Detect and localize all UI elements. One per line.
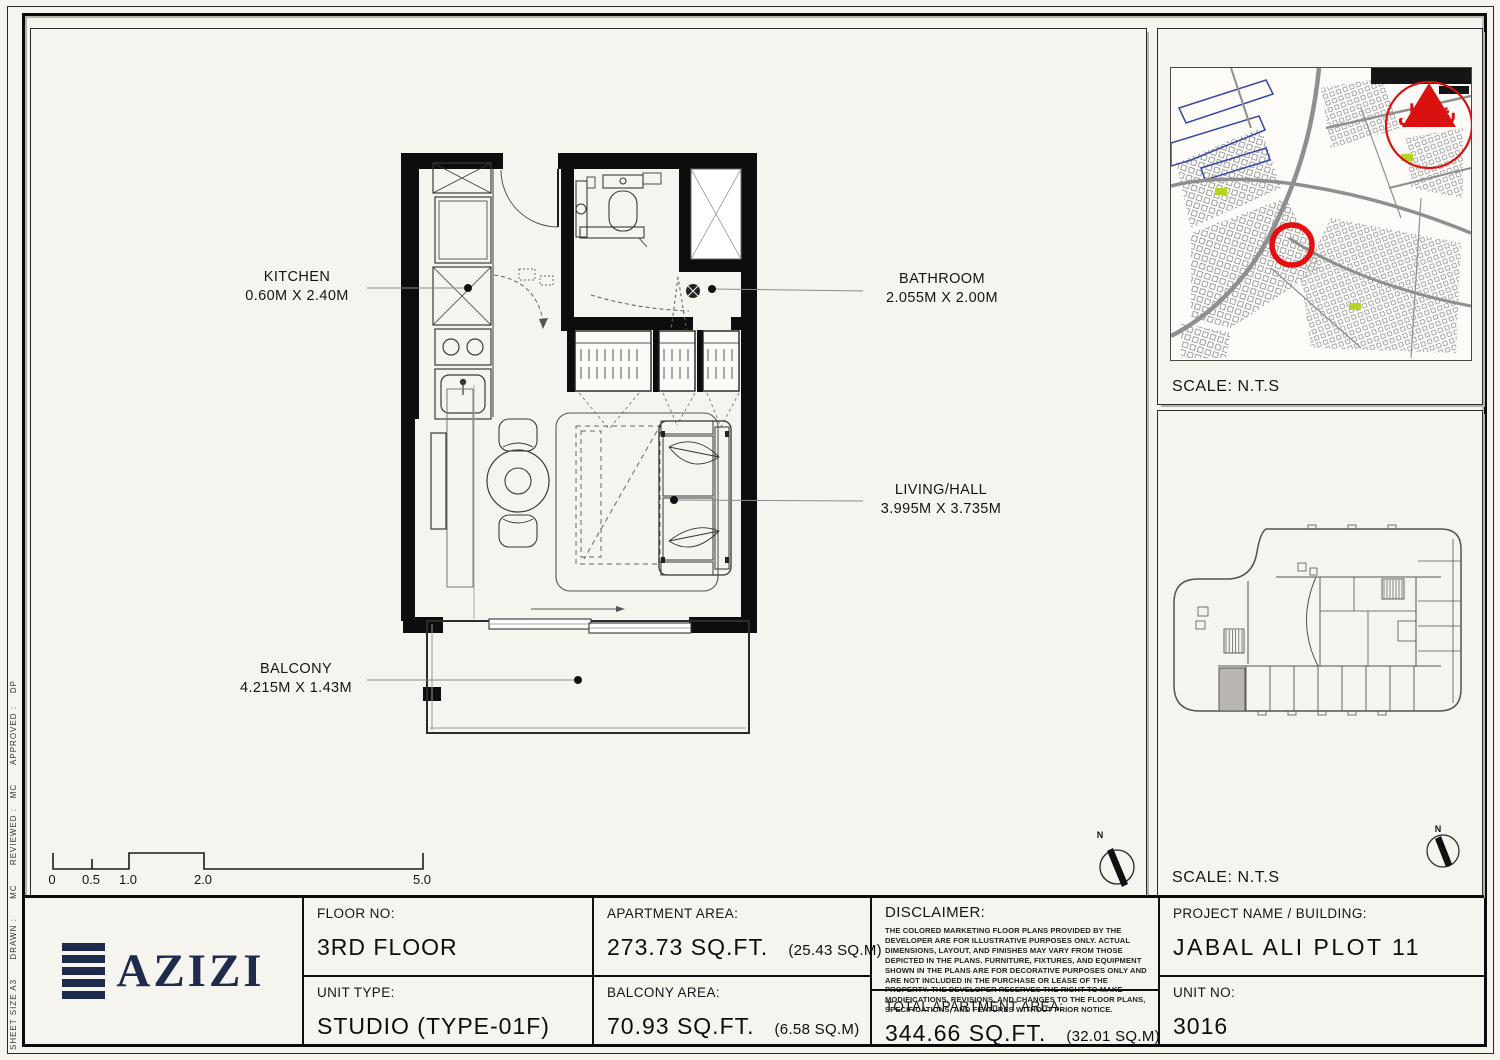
room-label-balcony: BALCONY 4.215M X 1.43M (226, 660, 366, 698)
room-name: BATHROOM (872, 270, 1012, 289)
north-compass-icon (1100, 848, 1134, 887)
total-area-label: TOTAL APARTMENT AREA: (885, 999, 1148, 1014)
key-plan-panel: SCALE: N.T.S N (1157, 410, 1483, 896)
apartment-area-value: 273.73 SQ.FT.(25.43 SQ.M) (607, 934, 860, 961)
room-label-bathroom: BATHROOM 2.055M X 2.00M (872, 270, 1012, 308)
scale-tick-3: 2.0 (194, 872, 212, 887)
room-dims: 2.055M X 2.00M (872, 289, 1012, 308)
room-dims: 0.60M X 2.40M (227, 287, 367, 306)
unit-highlight (1219, 668, 1245, 711)
unit-no-value: 3016 (1173, 1013, 1474, 1040)
floor-unit-column: FLOOR NO: 3RD FLOOR UNIT TYPE: STUDIO (T… (302, 898, 592, 1044)
service-shaft (691, 169, 741, 259)
apartment-area-label: APARTMENT AREA: (607, 906, 860, 921)
floor-no-cell: FLOOR NO: 3RD FLOOR (304, 898, 592, 975)
sofa (659, 421, 731, 575)
floor-plan-drawing (31, 29, 1146, 895)
balcony-area-label: BALCONY AREA: (607, 985, 860, 1000)
unit-no-cell: UNIT NO: 3016 (1160, 975, 1484, 1046)
apartment-area-metric: (25.43 SQ.M) (788, 942, 882, 959)
living-furniture (431, 385, 731, 619)
title-block: AZIZI FLOOR NO: 3RD FLOOR UNIT TYPE: STU… (25, 895, 1484, 1044)
room-name: LIVING/HALL (871, 481, 1011, 500)
unit-type-value: STUDIO (TYPE-01F) (317, 1013, 582, 1040)
disclaimer-column: DISCLAIMER: THE COLORED MARKETING FLOOR … (870, 898, 1158, 1044)
disclaimer-cell: DISCLAIMER: THE COLORED MARKETING FLOOR … (872, 898, 1158, 989)
unit-type-label: UNIT TYPE: (317, 985, 582, 1000)
total-area-value: 344.66 SQ.FT.(32.01 SQ.M) (885, 1020, 1148, 1047)
disclaimer-label: DISCLAIMER: (885, 904, 1148, 921)
unit-no-label: UNIT NO: (1173, 985, 1474, 1000)
room-dims: 3.995M X 3.735M (871, 500, 1011, 519)
project-name-value: JABAL ALI PLOT 11 (1173, 934, 1474, 961)
scale-tick-4: 5.0 (413, 872, 431, 887)
floor-no-value: 3RD FLOOR (317, 934, 582, 961)
room-name: BALCONY (226, 660, 366, 679)
project-name-label: PROJECT NAME / BUILDING: (1173, 906, 1474, 921)
scale-tick-2: 1.0 (119, 872, 137, 887)
project-column: PROJECT NAME / BUILDING: JABAL ALI PLOT … (1158, 898, 1484, 1044)
floor-no-label: FLOOR NO: (317, 906, 582, 921)
entrance-door-swing (494, 169, 558, 329)
kitchen-appliances (433, 163, 493, 419)
balcony-area-value: 70.93 SQ.FT.(6.58 SQ.M) (607, 1013, 860, 1040)
logo-bars-icon (62, 943, 105, 999)
total-area-metric: (32.01 SQ.M) (1066, 1028, 1160, 1045)
unit-type-cell: UNIT TYPE: STUDIO (TYPE-01F) (304, 975, 592, 1046)
azizi-logo: AZIZI (25, 898, 302, 1044)
room-label-living-hall: LIVING/HALL 3.995M X 3.735M (871, 481, 1011, 519)
key-plan-scale-label: SCALE: N.T.S (1172, 869, 1280, 887)
location-map-panel: SCALE: N.T.S (1157, 28, 1483, 405)
apartment-area-cell: APARTMENT AREA: 273.73 SQ.FT.(25.43 SQ.M… (594, 898, 870, 975)
room-dims: 4.215M X 1.43M (226, 679, 366, 698)
map-scale-label: SCALE: N.T.S (1172, 378, 1280, 396)
room-name: KITCHEN (227, 268, 367, 287)
key-plan-compass-icon (1427, 835, 1459, 867)
scale-tick-0: 0 (48, 872, 55, 887)
key-plan-north-label: N (1435, 824, 1442, 834)
balcony-area-cell: BALCONY AREA: 70.93 SQ.FT.(6.58 SQ.M) (594, 975, 870, 1046)
sheet-margin-notes: SHEET SIZE A3 DRAWN : MC REVIEWED : MC A… (9, 772, 21, 1050)
total-area-cell: TOTAL APARTMENT AREA: 344.66 SQ.FT.(32.0… (872, 989, 1158, 1046)
balcony-area-metric: (6.58 SQ.M) (775, 1021, 860, 1038)
scale-tick-1: 0.5 (82, 872, 100, 887)
sofa-bed-outline (576, 426, 660, 564)
project-name-cell: PROJECT NAME / BUILDING: JABAL ALI PLOT … (1160, 898, 1484, 975)
north-label: N (1097, 830, 1104, 840)
plan-sheet: SHEET SIZE A3 DRAWN : MC REVIEWED : MC A… (0, 0, 1500, 1060)
scale-bar (53, 853, 423, 869)
key-plan-drawing (1158, 411, 1480, 892)
areas-column: APARTMENT AREA: 273.73 SQ.FT.(25.43 SQ.M… (592, 898, 870, 1044)
north-arabic-label: شمال (1386, 100, 1468, 129)
room-label-kitchen: KITCHEN 0.60M X 2.40M (227, 268, 367, 306)
logo-cell: AZIZI (25, 898, 302, 1044)
drawing-area (30, 28, 1147, 896)
logo-text: AZIZI (116, 944, 264, 998)
